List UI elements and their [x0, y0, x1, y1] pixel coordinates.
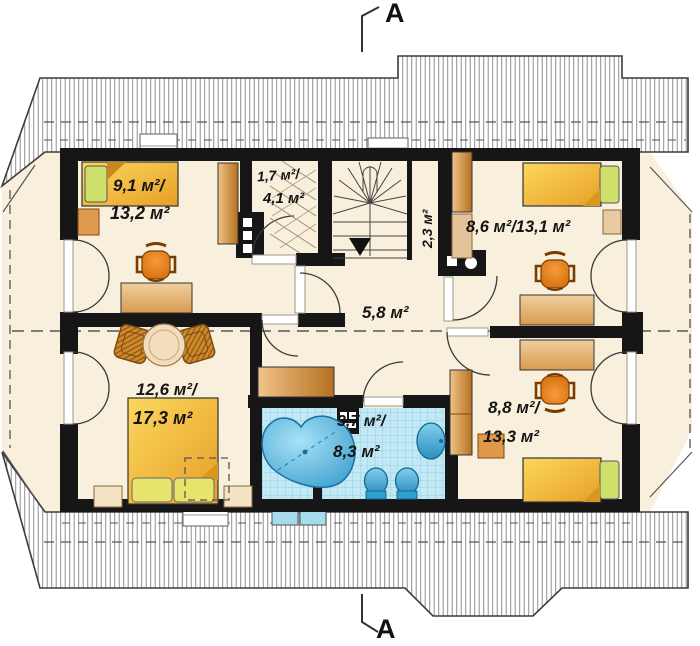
area-label-bedroom-top-left-1: 9,1 м²/ — [113, 177, 164, 194]
area-label-closet-1: 1,7 м²/ — [257, 167, 300, 184]
cabinet — [258, 367, 334, 397]
pillow — [174, 478, 214, 502]
area-label-bedroom-bottom-left-2: 17,3 м² — [133, 409, 192, 427]
pillow — [132, 478, 172, 502]
nightstand — [224, 486, 252, 507]
bidet — [396, 468, 419, 494]
pillow — [85, 166, 107, 202]
section-mark-top — [362, 7, 379, 52]
section-label-bottom: A — [376, 616, 396, 643]
nightstand — [603, 210, 621, 234]
floor-plan-drawing — [0, 0, 700, 646]
single-bed — [523, 163, 601, 206]
area-label-bedroom-top-left-2: 13,2 м² — [110, 204, 169, 222]
wardrobe — [452, 152, 472, 212]
desk — [520, 295, 594, 325]
area-label-bathroom-1: 3,7 м²/ — [337, 414, 385, 430]
wardrobe — [218, 163, 238, 244]
desk — [121, 283, 192, 313]
area-label-bedroom-bottom-right-2: 13,3 м² — [483, 428, 539, 445]
area-label-bedroom-top-right: 8,6 м²/13,1 м² — [466, 219, 570, 236]
toilet — [365, 468, 388, 494]
floor-plan: A A 9,1 м²/ 13,2 м² 1,7 м²/ 4,1 м² 2,3 м… — [0, 0, 700, 646]
nightstand — [94, 486, 122, 507]
section-label-top: A — [385, 0, 405, 27]
nightstand — [78, 209, 99, 235]
area-label-closet-2: 4,1 м² — [263, 191, 304, 206]
area-label-bathroom-2: 8,3 м² — [333, 443, 380, 460]
area-label-hallway: 5,8 м² — [362, 304, 409, 321]
area-label-stair-nook: 2,3 м² — [420, 202, 434, 248]
pillow — [600, 166, 619, 203]
wardrobe — [450, 370, 472, 455]
area-label-bedroom-bottom-right-1: 8,8 м²/ — [488, 399, 539, 416]
single-bed — [523, 458, 601, 502]
desk — [520, 340, 594, 370]
pillow — [600, 461, 619, 499]
area-label-bedroom-bottom-left-1: 12,6 м²/ — [136, 381, 197, 398]
